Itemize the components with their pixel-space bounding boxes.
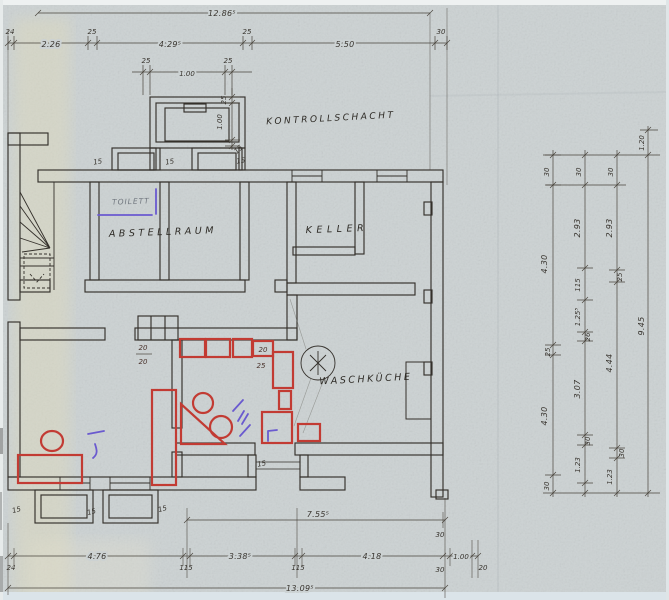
dim-15-label: 15 xyxy=(93,157,103,166)
floorplan-svg: KONTROLLSCHACHT ABSTELLRAUM KELLER WASCH… xyxy=(0,0,669,600)
dim-label: 2.26 xyxy=(41,40,60,49)
dim-label: 30 xyxy=(437,28,446,36)
dim-label: 2.93 xyxy=(573,218,582,237)
paper-background xyxy=(0,0,669,600)
paper-stain xyxy=(14,18,70,598)
scan-edge xyxy=(0,592,669,600)
dim-label: 3.38⁵ xyxy=(229,552,252,561)
dim-label: 1.23 xyxy=(574,457,582,473)
dim-label: 1.00 xyxy=(179,70,195,78)
dim-label: 1.20 xyxy=(638,135,646,151)
counter-dim-label: 20 xyxy=(139,344,148,352)
dim-label: 115 xyxy=(179,564,193,572)
scan-artifact xyxy=(0,556,3,592)
dim-label: 4.30 xyxy=(540,406,549,425)
dim-label: 1.25⁵ xyxy=(574,308,582,327)
dim-label: 25 xyxy=(88,28,97,36)
scan-edge xyxy=(0,0,669,5)
dim-label: 25 xyxy=(544,347,552,356)
dim-label: 25 xyxy=(243,28,252,36)
dim-label: 1.00 xyxy=(453,553,469,561)
dim-label: 24 xyxy=(6,28,15,36)
dim-15-label: 15 xyxy=(236,156,246,165)
dim-15-label: 15 xyxy=(165,157,175,166)
dim-label: 25 xyxy=(142,57,151,65)
counter-dim-label: 20 xyxy=(259,346,268,354)
dim-label: 4.44 xyxy=(605,353,614,372)
dim-label: 3.07 xyxy=(573,379,582,399)
counter-dim-label: 25 xyxy=(257,362,266,370)
dim-label: 115 xyxy=(574,278,582,292)
dim-label: 30 xyxy=(436,531,445,539)
dim-label: 4.29⁵ xyxy=(159,40,182,49)
dim-label: 4.76 xyxy=(87,552,106,561)
dim-label: 25 xyxy=(224,57,233,65)
dim-label: 30 xyxy=(543,481,551,490)
floorplan-scan: KONTROLLSCHACHT ABSTELLRAUM KELLER WASCH… xyxy=(0,0,669,600)
room-label-toilett: TOILETT xyxy=(112,196,150,206)
dim-label: 9.45 xyxy=(637,316,646,335)
dim-label: 13.09⁵ xyxy=(286,584,314,593)
dim-label: 30 xyxy=(543,167,551,176)
dim-label: 5.50 xyxy=(335,40,354,49)
dim-label: 30 xyxy=(436,566,445,574)
dim-label: 26 xyxy=(584,332,592,341)
dim-label: 30 xyxy=(584,436,592,445)
room-label-keller: KELLER xyxy=(306,223,369,236)
dim-label: 30 xyxy=(575,167,583,176)
counter-dim-label: 20 xyxy=(139,358,148,366)
dim-label: 30 xyxy=(607,167,615,176)
dim-label: 115 xyxy=(291,564,305,572)
dim-label: 12.86⁵ xyxy=(208,9,236,18)
dim-label: 4.30 xyxy=(540,254,549,273)
dim-label: 1.00 xyxy=(216,114,224,130)
dim-label: 25 xyxy=(616,272,624,281)
scan-artifact xyxy=(0,428,3,454)
dim-label: 1.23 xyxy=(606,469,614,485)
paper-stain xyxy=(30,540,150,600)
dim-label: 4.18 xyxy=(362,552,381,561)
dim-label: 24 xyxy=(7,564,16,572)
dim-label: 25 xyxy=(220,95,228,104)
dim-label: 7.55⁵ xyxy=(307,510,330,519)
dim-label: 2.93 xyxy=(605,218,614,237)
dim-label: 20 xyxy=(479,564,488,572)
dim-label: 30 xyxy=(618,448,626,457)
scan-artifact xyxy=(0,492,2,530)
